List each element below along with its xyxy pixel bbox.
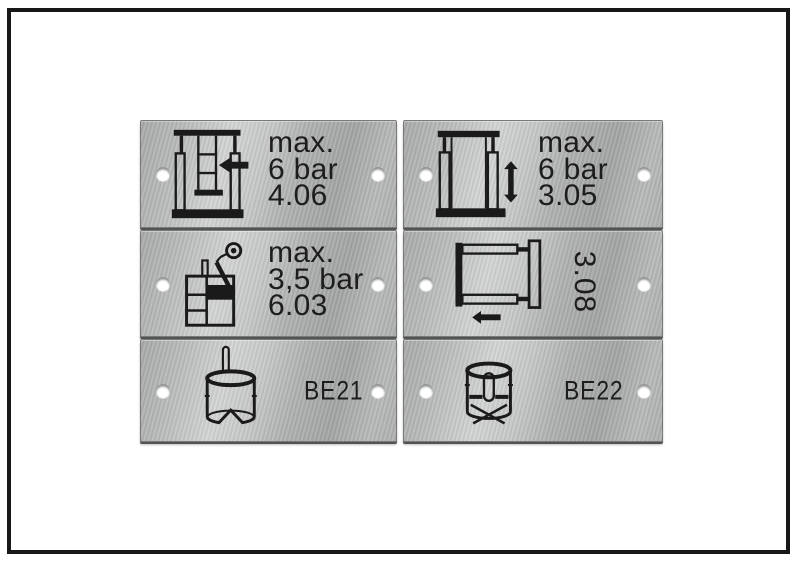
plate-press-406: max. 6 bar 4.06 [140,120,397,228]
tool-code-label: BE22 [564,375,624,406]
product-photo-canvas: { "colors": { "background": "#ffffff", "… [0,0,800,565]
rotated-code-label: 3.08 [567,251,601,313]
plate-caption: max. 6 bar 4.06 [268,130,338,210]
plate-caption: max. 3,5 bar 6.03 [268,240,364,320]
plate-frame-305: max. 6 bar 3.05 [403,120,663,228]
plate-caption: max. 6 bar 3.05 [538,130,608,210]
photo-border-frame [7,8,790,554]
plate-slide-308: 3.08 [403,230,663,337]
horizontal-slide-frame-icon [404,231,662,336]
caption-line-code: 3.05 [538,183,608,210]
plate-be22: BE22 [403,339,663,442]
caption-line-code: 4.06 [268,183,338,210]
plate-spray-603: max. 3,5 bar 6.03 [140,230,397,337]
caption-line-code: 6.03 [268,293,364,320]
tool-code-label: BE21 [304,375,364,406]
vertical-stroke-frame-icon [404,121,662,227]
plate-be21: BE21 [140,339,397,442]
